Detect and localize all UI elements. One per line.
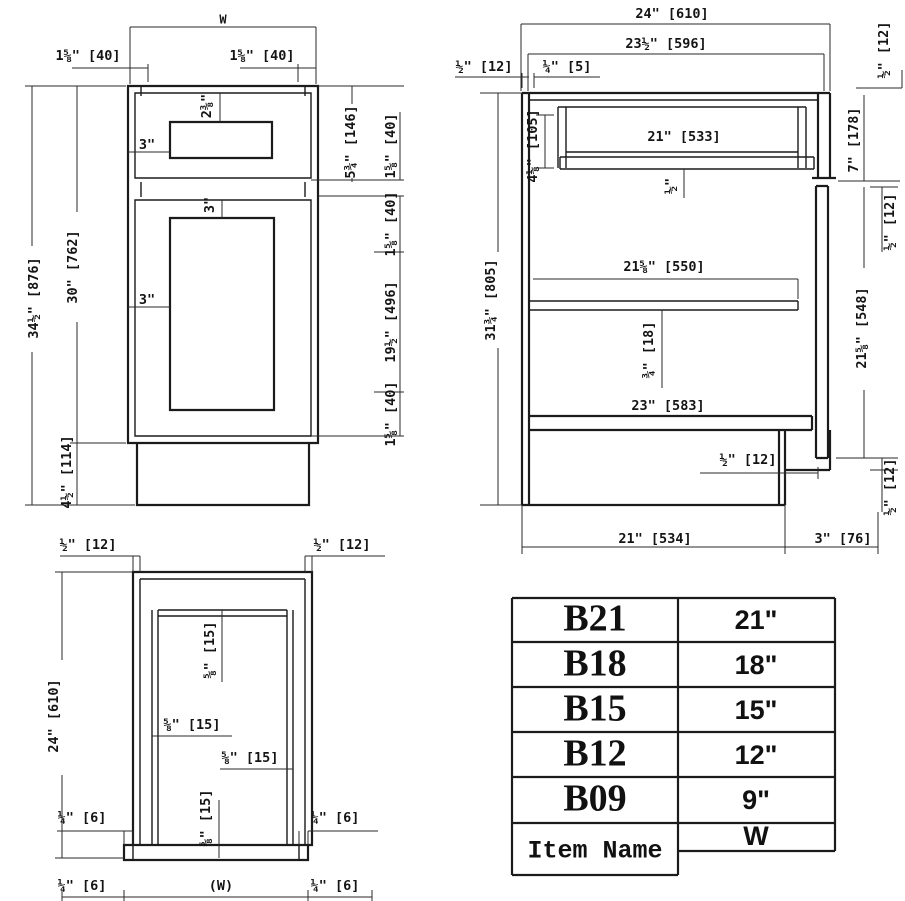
footer-item-label: Item Name	[527, 837, 662, 866]
plan-door-width: (W)	[209, 878, 233, 894]
side-back-clearance: ¼" [5]	[543, 59, 592, 75]
front-view-cabinet-outline	[128, 86, 318, 505]
item-code: B18	[563, 643, 626, 685]
item-width: 12"	[735, 740, 778, 770]
item-width: 9"	[742, 785, 770, 815]
side-drawer-bottom: ½"	[663, 178, 679, 194]
front-top-right-offset: 1⅝" [40]	[229, 48, 294, 64]
item-width: 18"	[735, 650, 778, 680]
size-table-row: B09 9"	[563, 778, 770, 820]
size-table-grid	[512, 598, 835, 875]
plan-bottom-right-reveal: ¼" [6]	[311, 878, 360, 894]
side-toe-recess: 3" [76]	[815, 531, 872, 547]
front-drawer-handle-inset: 3"	[139, 137, 155, 153]
side-floor-depth: 21" [534]	[618, 531, 691, 547]
plan-door-thickness: ⅝" [15]	[198, 790, 214, 847]
front-width-label: W	[219, 13, 227, 27]
size-table-footer: Item Name W	[527, 821, 769, 865]
item-code: B12	[563, 733, 626, 775]
size-table-row: B21 21"	[563, 598, 777, 640]
item-code: B09	[563, 778, 626, 820]
side-drawer-depth: 21" [533]	[647, 129, 720, 145]
footer-width-label: W	[743, 821, 769, 851]
side-back-panel: ½" [12]	[456, 59, 513, 75]
side-door-top-gap: ½" [12]	[882, 194, 898, 251]
plan-left-thickness: ⅝" [15]	[164, 717, 221, 733]
plan-view: ½" [12] ½" [12] 24" [610] ⅝" [15] ⅝" [15…	[46, 537, 385, 901]
side-interior-depth: 23½" [596]	[625, 36, 706, 52]
side-view-outline	[522, 93, 836, 505]
item-code: B21	[563, 598, 626, 640]
size-table-row: B18 18"	[563, 643, 777, 685]
front-toe-kick-height: 4½" [114]	[59, 435, 75, 508]
size-table-row: B12 12"	[563, 733, 777, 775]
front-door-panel-inset: 3"	[139, 292, 155, 308]
side-top-rail-height: 7" [178]	[846, 107, 862, 172]
side-shelf-thickness: ¾" [18]	[641, 322, 657, 379]
side-bottom-depth: 23" [583]	[631, 398, 704, 414]
size-table: B21 21" B18 18" B15 15" B12 12" B09 9" I…	[512, 598, 835, 875]
front-view: W 1⅝" [40] 1⅝" [40] 34½" [876] 30" [762]…	[25, 13, 404, 509]
plan-left-reveal: ¼" [6]	[58, 810, 107, 826]
front-door-top-rail: 1⅝" [40]	[383, 191, 399, 256]
front-drawer-front-height: 5¾" [146]	[343, 105, 359, 178]
item-width: 15"	[735, 695, 778, 725]
plan-depth: 24" [610]	[46, 679, 62, 752]
drawing-sheet: W 1⅝" [40] 1⅝" [40] 34½" [876] 30" [762]…	[0, 0, 905, 901]
front-drawer-rail: 1⅝" [40]	[383, 113, 399, 178]
front-door-handle-drop: 3"	[202, 197, 218, 213]
item-code: B15	[563, 688, 626, 730]
side-overall-height: 31¾" [805]	[483, 259, 499, 340]
plan-left-panel: ½" [12]	[60, 537, 117, 553]
side-top-overhang: ½" [12]	[876, 22, 892, 79]
size-table-row: B15 15"	[563, 688, 777, 730]
front-view-panels	[135, 86, 311, 436]
side-drawer-opening: 4⅛" [105]	[525, 109, 541, 182]
front-drawer-handle-drop: 2⅜"	[199, 94, 215, 118]
plan-right-reveal: ¼" [6]	[311, 810, 360, 826]
side-toe-board: ½" [12]	[720, 452, 777, 468]
front-door-bottom-rail: 1⅝" [40]	[383, 381, 399, 446]
side-view: 24" [610] 23½" [596] ½" [12] ¼" [5] ½" […	[455, 6, 902, 554]
front-door-panel-height: 19½" [496]	[383, 281, 399, 362]
side-door-bottom-gap: ½" [12]	[882, 459, 898, 516]
plan-back-thickness: ⅝" [15]	[202, 622, 218, 679]
side-door-height: 21⅝" [548]	[854, 287, 870, 368]
front-overall-height: 34½" [876]	[26, 257, 42, 338]
side-overall-depth: 24" [610]	[635, 6, 708, 22]
front-top-left-offset: 1⅝" [40]	[55, 48, 120, 64]
side-shelf-depth: 21⅝" [550]	[623, 259, 704, 275]
front-body-height: 30" [762]	[65, 230, 81, 303]
plan-right-thickness: ⅝" [15]	[222, 750, 279, 766]
item-width: 21"	[735, 605, 778, 635]
plan-right-panel: ½" [12]	[314, 537, 371, 553]
plan-bottom-left-reveal: ¼" [6]	[58, 878, 107, 894]
